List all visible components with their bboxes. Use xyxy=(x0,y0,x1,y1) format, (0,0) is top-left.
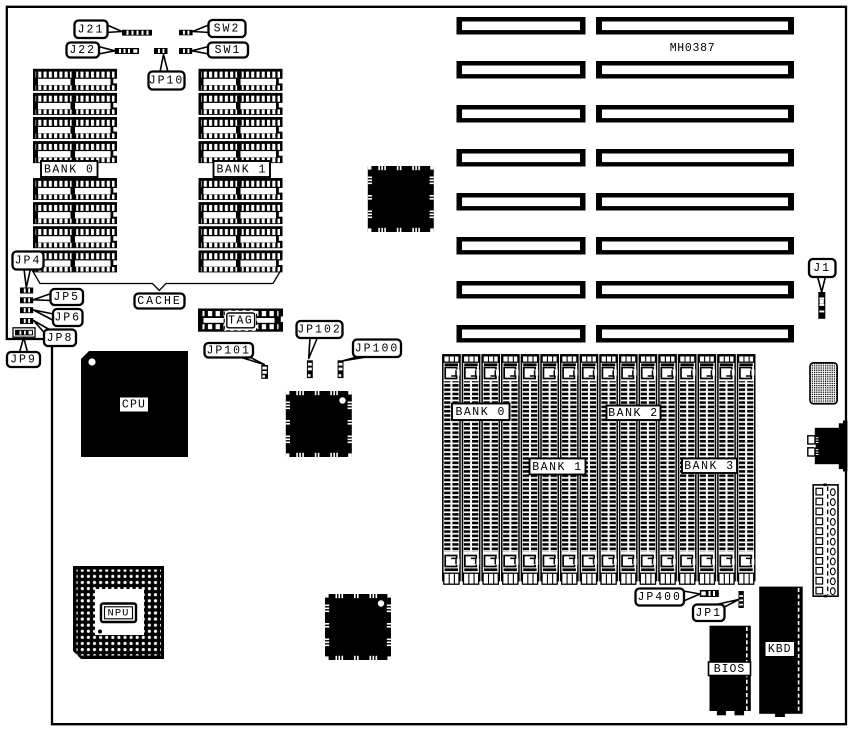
svg-text:BANK 1: BANK 1 xyxy=(532,461,582,474)
svg-text:TAG: TAG xyxy=(228,315,253,328)
svg-text:MH0387: MH0387 xyxy=(670,42,716,55)
svg-text:JP102: JP102 xyxy=(297,324,342,337)
svg-text:JP400: JP400 xyxy=(637,591,682,604)
svg-text:SW2: SW2 xyxy=(214,23,241,36)
svg-text:JP101: JP101 xyxy=(206,344,251,357)
svg-text:BIOS: BIOS xyxy=(714,663,746,676)
svg-text:JP8: JP8 xyxy=(47,332,74,345)
svg-text:J21: J21 xyxy=(78,23,105,36)
svg-text:CPU: CPU xyxy=(122,399,146,412)
svg-text:JP5: JP5 xyxy=(53,291,80,304)
svg-text:NPU: NPU xyxy=(108,607,130,619)
svg-text:JP100: JP100 xyxy=(355,342,400,355)
svg-text:JP10: JP10 xyxy=(149,75,185,88)
svg-text:JP9: JP9 xyxy=(10,354,37,367)
svg-text:BANK 1: BANK 1 xyxy=(216,163,266,176)
svg-text:BANK 2: BANK 2 xyxy=(608,407,658,420)
svg-text:J1: J1 xyxy=(813,262,831,275)
svg-text:CACHE: CACHE xyxy=(137,295,182,308)
svg-text:BANK 3: BANK 3 xyxy=(684,460,734,473)
svg-text:BANK 0: BANK 0 xyxy=(44,163,94,176)
svg-text:KBD: KBD xyxy=(768,643,792,656)
svg-text:JP6: JP6 xyxy=(54,312,81,325)
svg-text:SW1: SW1 xyxy=(215,44,242,57)
svg-text:JP4: JP4 xyxy=(15,255,42,268)
svg-text:JP1: JP1 xyxy=(695,607,722,620)
svg-text:J22: J22 xyxy=(69,44,96,57)
svg-text:BANK 0: BANK 0 xyxy=(455,406,505,419)
